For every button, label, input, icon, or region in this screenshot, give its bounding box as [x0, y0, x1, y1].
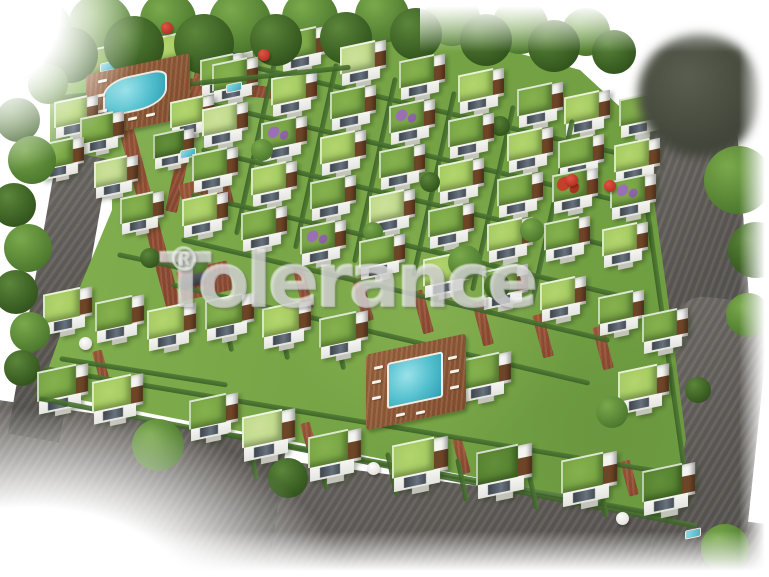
sun-lounger: [396, 412, 405, 417]
tree: [0, 183, 36, 227]
watermark-text: Tolerance: [160, 236, 535, 325]
red-umbrella-icon: [604, 180, 616, 192]
sun-lounger: [450, 385, 459, 390]
villa-side-wall: [217, 192, 228, 222]
tree: [132, 419, 184, 471]
white-umbrella-icon: [367, 462, 380, 475]
tolerance-watermark: Tolerance®: [160, 236, 193, 325]
villa-side-wall: [483, 113, 494, 143]
sun-lounger: [372, 395, 381, 400]
villa-side-wall: [645, 174, 656, 204]
sun-lounger: [416, 410, 425, 415]
villa-side-wall: [227, 147, 238, 177]
villa-side-wall: [542, 127, 553, 157]
villa-side-wall: [656, 363, 668, 397]
tree: [10, 312, 50, 352]
white-umbrella-icon: [79, 337, 92, 350]
villa-side-wall: [349, 428, 362, 463]
villa-side-wall: [127, 155, 138, 184]
villa-side-wall: [153, 191, 164, 220]
red-umbrella-icon: [161, 22, 173, 34]
villa-side-wall: [247, 57, 258, 87]
villa-side-wall: [463, 203, 474, 233]
sun-lounger: [128, 116, 137, 121]
villa-side-wall: [286, 161, 297, 191]
villa-side-wall: [276, 206, 287, 236]
villa-side-wall: [473, 158, 484, 188]
white-umbrella-icon: [616, 512, 629, 525]
tree: [592, 30, 636, 74]
villa-side-wall: [75, 363, 87, 397]
villa-side-wall: [226, 392, 238, 424]
sun-lounger: [146, 112, 155, 117]
tree: [528, 20, 580, 72]
villa-side-wall: [593, 134, 604, 164]
villa-side-wall: [237, 102, 248, 132]
tree: [726, 293, 769, 337]
sun-lounger: [372, 379, 381, 384]
villa-side-wall: [80, 286, 92, 318]
villa-side-wall: [575, 276, 586, 306]
tree: [704, 146, 769, 214]
villa-side-wall: [587, 168, 598, 198]
villa-side-wall: [73, 137, 84, 166]
villa-side-wall: [498, 351, 510, 385]
villa-side-wall: [603, 450, 617, 487]
villa-side-wall: [532, 172, 543, 202]
villa-side-wall: [296, 116, 307, 146]
tree: [28, 64, 68, 104]
villa-side-wall: [283, 408, 296, 443]
tree: [8, 136, 56, 184]
villa-side-wall: [493, 68, 504, 98]
sun-lounger: [450, 369, 459, 374]
red-umbrella-icon: [258, 49, 270, 61]
tree: [4, 350, 40, 386]
villa-side-wall: [434, 435, 448, 472]
tree: [596, 396, 628, 428]
villa-side-wall: [434, 54, 445, 84]
tree: [701, 524, 749, 572]
villa-side-wall: [130, 373, 142, 407]
tree: [420, 172, 440, 192]
sun-lounger: [374, 365, 383, 370]
villa-side-wall: [599, 90, 610, 120]
villa-side-wall: [677, 308, 688, 338]
villa-side-wall: [132, 294, 144, 326]
sun-lounger: [448, 355, 457, 360]
registered-trademark-icon: ®: [168, 240, 201, 279]
villa-side-wall: [424, 99, 435, 129]
villa-side-wall: [306, 71, 317, 101]
tree: [390, 8, 442, 60]
tree: [251, 139, 273, 161]
villa-side-wall: [375, 40, 386, 70]
villa-side-wall: [552, 82, 563, 112]
villa-side-wall: [365, 85, 376, 115]
tree: [460, 14, 512, 66]
villa-side-wall: [649, 138, 660, 168]
villa-side-wall: [345, 175, 356, 205]
villa-side-wall: [404, 189, 415, 219]
tree: [4, 224, 52, 272]
tree: [685, 377, 711, 403]
villa-side-wall: [518, 442, 532, 479]
villa-side-wall: [683, 462, 696, 497]
villa-side-wall: [355, 130, 366, 160]
tree: [140, 248, 160, 268]
red-umbrella-icon: [566, 174, 578, 186]
tree: [268, 458, 308, 498]
villa-side-wall: [637, 222, 648, 252]
pool-water: [387, 351, 443, 408]
villa-side-wall: [579, 216, 590, 246]
site-plan-canvas: Tolerance®: [0, 0, 769, 577]
villa-side-wall: [113, 111, 124, 140]
villa-side-wall: [414, 144, 425, 174]
sun-lounger: [98, 79, 107, 84]
